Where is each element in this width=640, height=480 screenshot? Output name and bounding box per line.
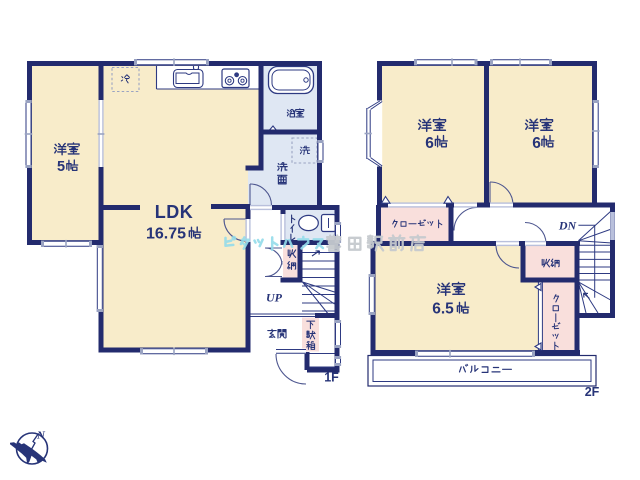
svg-text:N: N <box>36 430 46 442</box>
svg-text:16.75: 16.75 <box>146 226 186 243</box>
svg-text:DN: DN <box>558 219 578 233</box>
svg-text:LDK: LDK <box>155 202 194 222</box>
svg-text:UP: UP <box>266 291 283 305</box>
svg-text:6.5: 6.5 <box>432 301 454 318</box>
svg-text:6: 6 <box>532 135 541 152</box>
svg-text:1F: 1F <box>324 371 339 385</box>
svg-text:5: 5 <box>57 159 65 175</box>
svg-text:6: 6 <box>425 135 434 152</box>
svg-text:2F: 2F <box>585 385 600 399</box>
